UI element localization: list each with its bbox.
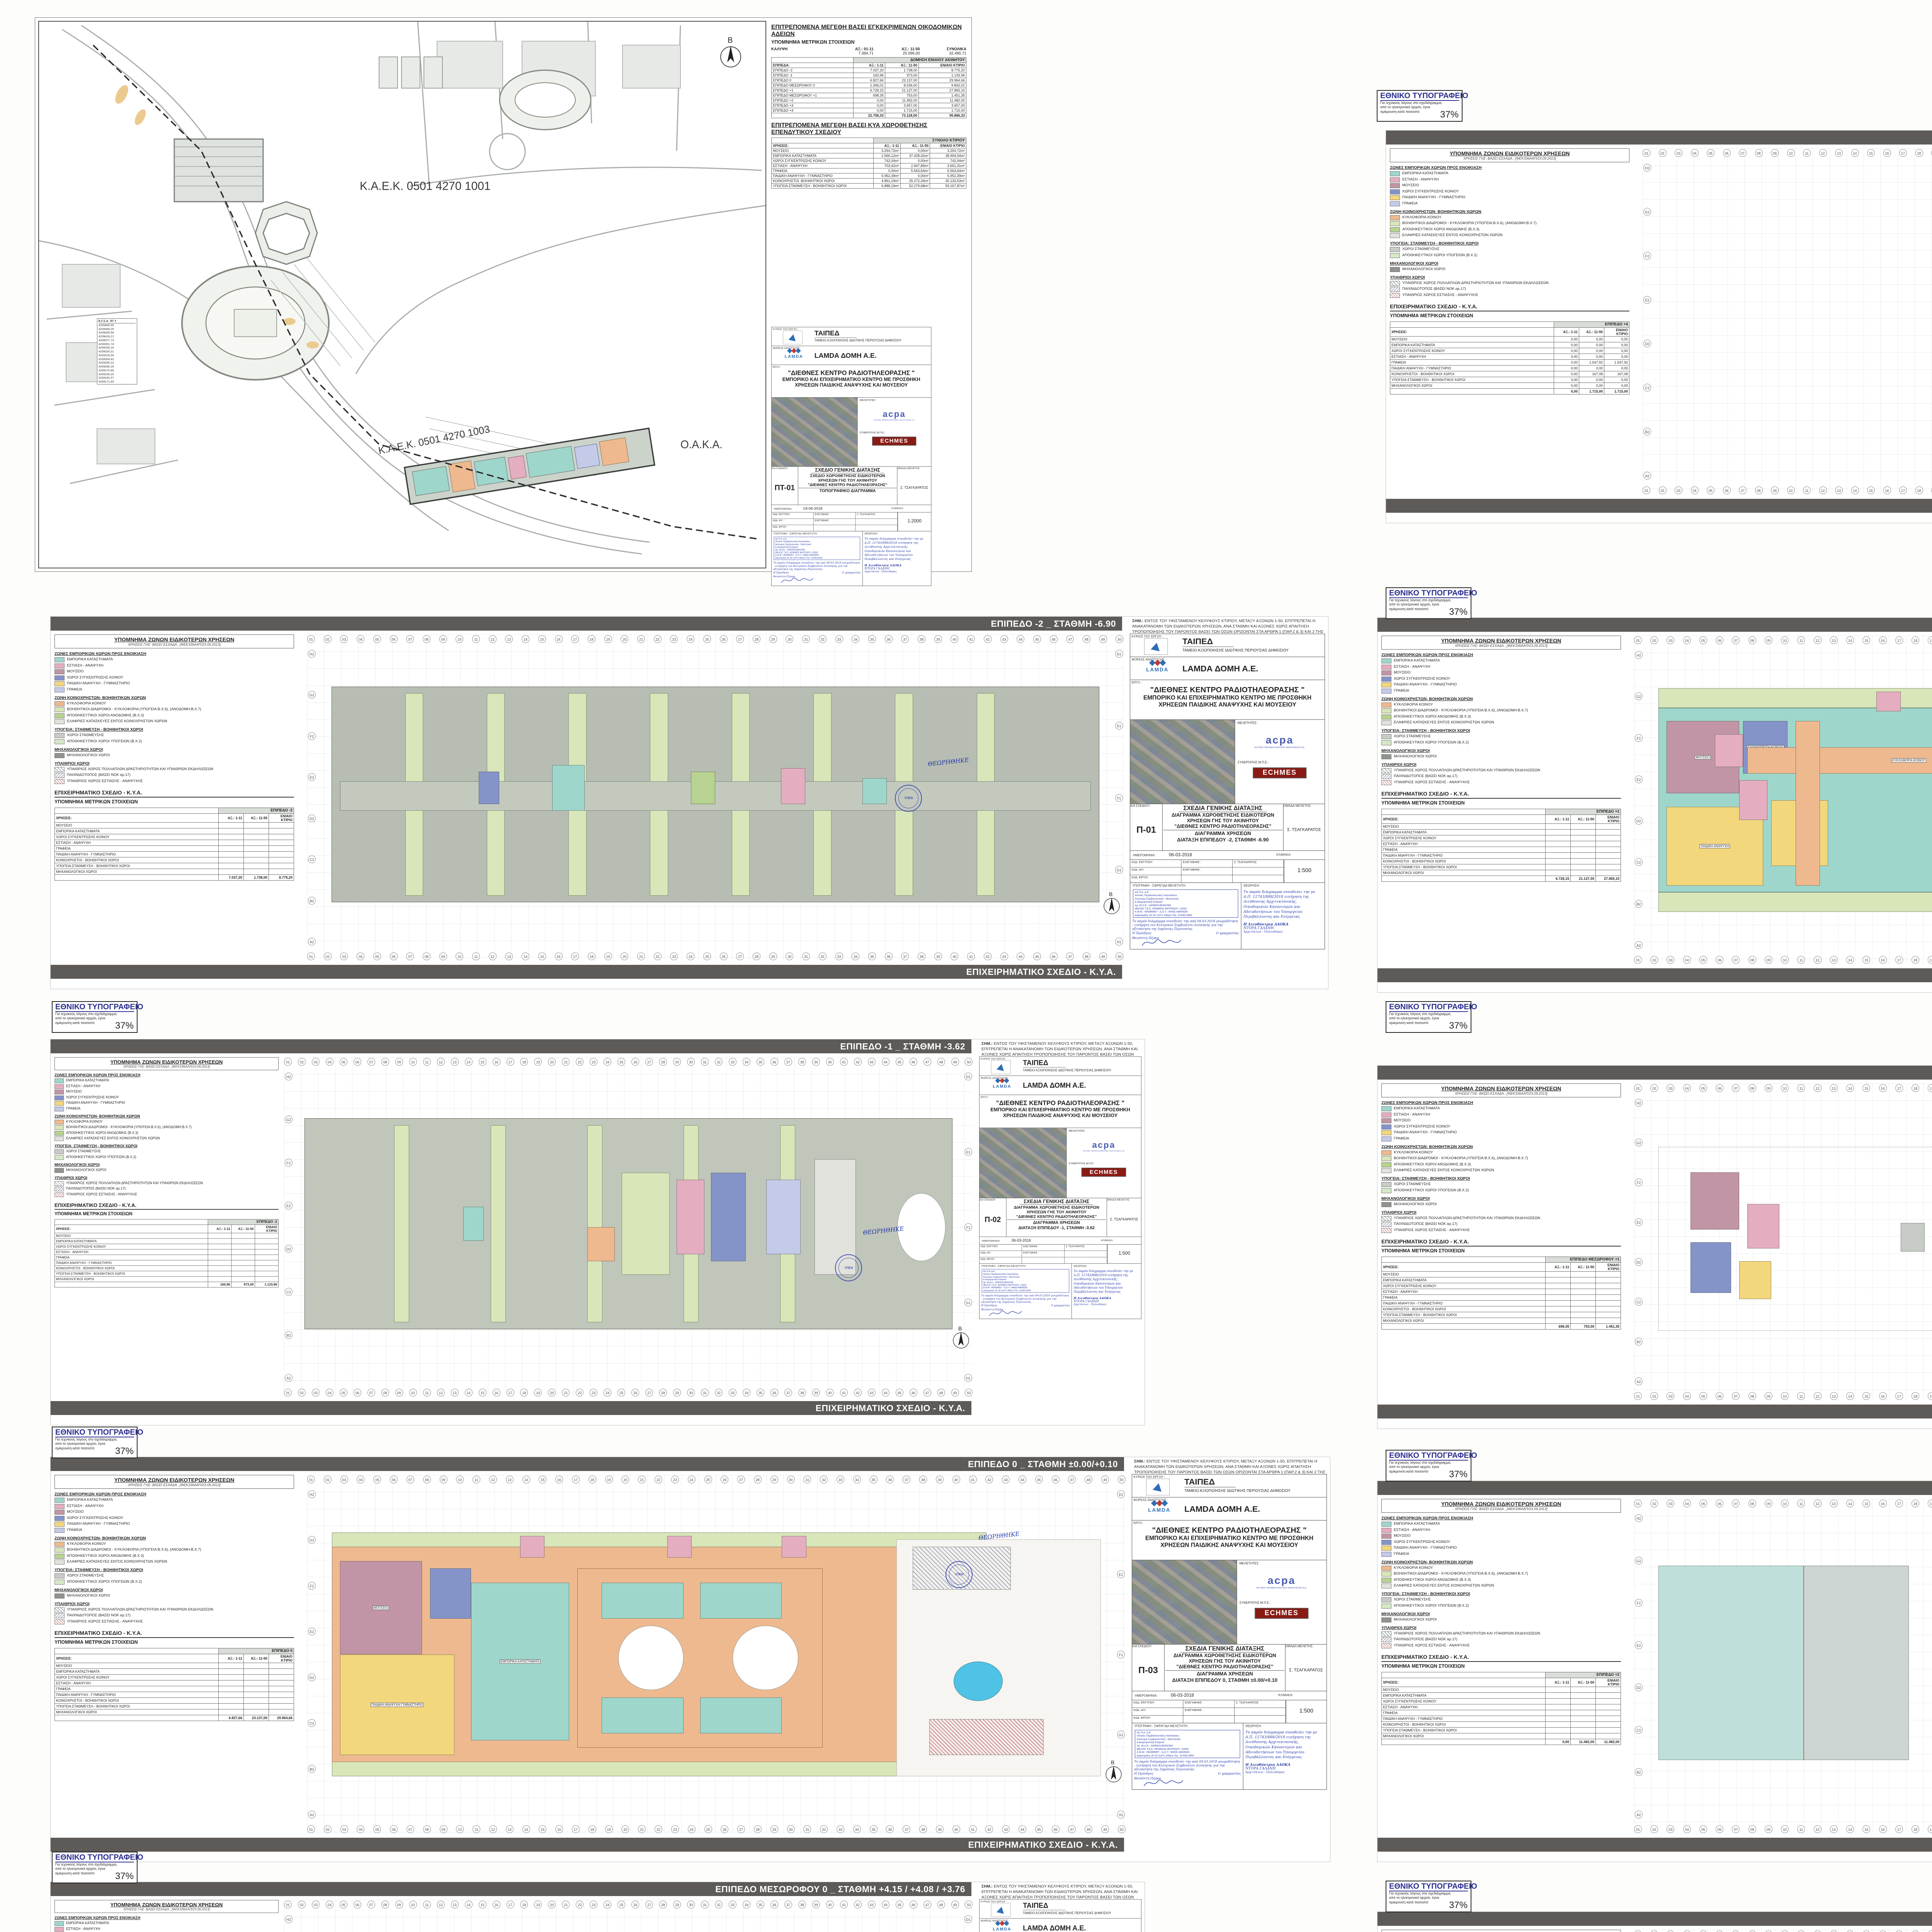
plan-zone: ΜΟΥΣΕΙΟ — [340, 1561, 422, 1655]
legend-item: ΥΠΑΙΘΡΙΟΣ ΧΩΡΟΣ ΠΟΛΛΑΠΛΩΝ ΔΡΑΣΤΗΡΙΟΤΗΤΩΝ… — [1381, 768, 1621, 773]
permitted-heading: ΕΠΙΤΡΕΠΟΜΕΝΑ ΜΕΓΕΘΗ ΒΑΣΕΙ ΕΓΚΕΚΡΙΜΕΝΩΝ Ο… — [771, 24, 966, 38]
legend-item: ΑΠΟΘΗΚΕΥΤΙΚΟΙ ΧΩΡΟΙ ΥΠΟΓΕΙΩΝ (Β.Χ.2) — [54, 739, 294, 744]
floor-plan: 0102030405060708091011121314151617181920… — [1634, 1499, 1932, 1834]
grid-axis-11: 11 — [473, 1825, 480, 1833]
grid-axis-34: 34 — [853, 1825, 861, 1833]
grid-axis-39: 39 — [934, 952, 942, 960]
reduction-percent: 37% — [1440, 109, 1459, 120]
grid-axis-16: 16 — [1883, 486, 1891, 494]
grid-axis-39: 39 — [934, 635, 942, 643]
grid-axis-22: 22 — [576, 1389, 583, 1396]
grid-axis-5: 05 — [340, 1058, 347, 1066]
legend-item-label: ΜΗΧΑΝΟΛΟΓΙΚΟΙ ΧΩΡΟΙ — [1394, 1202, 1437, 1206]
plan-zone — [340, 781, 1091, 811]
echmes-logo: ECHMES — [1253, 767, 1306, 778]
tennis-courts — [379, 57, 442, 88]
metrics-row: ΜΟΥΣΕΙΟ — [1382, 1271, 1621, 1277]
legend-item: ΜΟΥΣΕΙΟ — [54, 1090, 279, 1094]
plan-zone-label: ΠΑΙΔΙΚΗ ΑΝΑΨΥΧΗ ΓΥΜΝΑΣΤΗΡΙΟ — [371, 1702, 424, 1707]
grid-axis-17: 17 — [1899, 486, 1907, 494]
grid-axis-44: 44 — [1019, 1825, 1026, 1833]
metrics-heading: ΥΠΟΜΝΗΜΑ ΜΕΤΡΙΚΩΝ ΣΤΟΙΧΕΙΩΝ — [54, 799, 294, 804]
grid-axis-13: 13 — [1835, 149, 1843, 157]
legend-item: ΓΡΑΦΕΙΑ — [54, 1528, 294, 1533]
coord-value: 4209171,64 — [99, 380, 136, 384]
grid-axis-A2: A2 — [285, 1374, 293, 1382]
grid-axis-G2: G2 — [1643, 208, 1651, 216]
approver-name: ΝΤΟΡΑ ΓΑΛΑΝΗ — [1074, 1300, 1139, 1303]
legend-item-label: ΕΜΠΟΡΙΚΑ ΚΑΤΑΣΤΗΜΑΤΑ — [1394, 659, 1440, 663]
grid-axis-8: 08 — [1748, 956, 1756, 964]
plan-zone — [602, 1697, 684, 1733]
legend-swatch — [1390, 221, 1400, 226]
grid-axis-G2: G2 — [308, 691, 316, 699]
axis-letter-column-left: H2G2F2E2D2C2B2A2 — [1635, 1099, 1643, 1385]
legend-item: ΧΩΡΟΙ ΣΤΑΘΜΕΥΣΗΣ — [1381, 1182, 1621, 1187]
legend-item: ΧΩΡΟΙ ΣΤΑΘΜΕΥΣΗΣ — [54, 1573, 294, 1578]
legend-group-heading: ΖΩΝΕΣ ΕΜΠΟΡΙΚΩΝ ΧΩΡΩΝ ΠΡΟΣ ΕΝΟΙΚΙΑΣΗ — [54, 1073, 279, 1077]
metrics-row: ΜΟΥΣΕΙΟ — [1382, 1687, 1621, 1692]
grid-axis-6: 06 — [1723, 149, 1731, 157]
grid-axis-4: 04 — [357, 1476, 364, 1483]
grid-axis-12: 12 — [489, 1476, 497, 1483]
developer-row: ΦΟΡΕΑΣ ΑΝΑΠΤΥΞΗΣ : LAMDA LAMDA ΔΟΜΗ Α.Ε. — [772, 346, 931, 365]
legend-group-heading: ΖΩΝΕΣ ΕΜΠΟΡΙΚΩΝ ΧΩΡΩΝ ΠΡΟΣ ΕΝΟΙΚΙΑΣΗ — [1381, 1516, 1621, 1520]
legend-swatch — [1381, 1604, 1391, 1609]
legend-swatch — [1381, 1130, 1391, 1135]
legend-item: ΓΡΑΦΕΙΑ — [1381, 689, 1621, 694]
grid-axis-13: 13 — [451, 1389, 459, 1396]
legend-item-label: ΑΠΟΘΗΚΕΥΤΙΚΟΙ ΧΩΡΟΙ ΥΠΟΓΕΙΩΝ (Β.Χ.2) — [1394, 1604, 1469, 1608]
grid-axis-8: 08 — [1748, 1084, 1756, 1092]
legend-item-label: ΕΜΠΟΡΙΚΑ ΚΑΤΑΣΤΗΜΑΤΑ — [67, 1498, 113, 1502]
grid-axis-A2: A2 — [1643, 472, 1651, 480]
legend-item: ΕΛΑΦΡΙΕΣ ΚΑΤΑΣΚΕΥΕΣ ΕΝΤΟΣ ΚΟΙΝΟΧΡΗΣΤΩΝ Χ… — [54, 1136, 279, 1141]
grid-axis-10: 10 — [1781, 1930, 1789, 1932]
grid-axis-1: 01 — [1643, 149, 1650, 157]
legend-item: ΒΟΗΘΗΤΙΚΟΙ ΔΙΑΔΡΟΜΟΙ - ΚΥΚΛΟΦΟΡΙΑ (ΥΠΟΓΕ… — [54, 1548, 294, 1553]
legend-swatch — [54, 1548, 65, 1553]
stamp-title: ΕΘΝΙΚΟ ΤΥΠΟΓΡΑΦΕΙΟ — [1380, 92, 1459, 101]
grid-axis-17: 17 — [572, 1825, 580, 1833]
aerial-photo — [1132, 1560, 1237, 1644]
grid-axis-38: 38 — [919, 1476, 927, 1483]
grid-axis-45: 45 — [1033, 952, 1041, 960]
grid-axis-29: 29 — [770, 1476, 778, 1483]
national-printing-office-stamp: ΕΘΝΙΚΟ ΤΥΠΟΓΡΑΦΕΙΟ Για τεχνικούς λόγους … — [1386, 1001, 1471, 1033]
plan-zone — [1715, 734, 1743, 767]
drawing-level-line: ΔΙΑΤΑΞΗ ΕΠΙΠΕΔΟΥ -2, ΣΤΑΘΜΗ -6.90 — [1163, 837, 1282, 843]
legend-swatch — [1381, 1188, 1391, 1193]
metrics-row: ΥΠΟΓΕΙΑ:ΣΤΑΘΜΕΥΣΗ - ΒΟΗΘΗΤΙΚΟΙ ΧΩΡΟΙ — [55, 863, 294, 869]
legend-item-label: ΕΣΤΙΑΣΗ - ΑΝΑΨΥΧΗ — [66, 1085, 100, 1088]
grid-axis-17: 17 — [507, 1389, 514, 1396]
legend-item-label: ΑΠΟΘΗΚΕΥΤΙΚΟΙ ΧΩΡΟΙ ΑΝΟΔΟΜΗΣ (Β.Χ.3) — [67, 714, 144, 718]
drawing-scale: 1:500 — [1284, 860, 1325, 883]
grid-axis-46: 46 — [1050, 635, 1058, 643]
codes-row: ΚΩΔ. ΕΝΤΥΠΟΥ:ΕΛΕΓΧΘΗΚΕ :Σ. ΤΣΑΓΚΑΡΑΤΟΣ Κ… — [772, 512, 931, 531]
consultants-row: ΜΕΛΕΤΗΤΕΣ: acpa ΑΣΤΙΚΕΣ ΠΕΡΙΒΑΛΛΟΝΤΙΚΕΣ … — [772, 398, 931, 467]
drawing-info-row: Α/Α ΣΧΕΔΙΟΥ: Π-02 ΣΧΕΔΙΑ ΓΕΝΙΚΗΣ ΔΙΑΤΑΞΗ… — [980, 1198, 1141, 1237]
legend-item: ΓΡΑΦΕΙΑ — [1381, 1552, 1621, 1557]
signature-icon — [780, 575, 815, 585]
stamp-title: ΕΘΝΙΚΟ ΤΥΠΟΓΡΑΦΕΙΟ — [1389, 589, 1468, 598]
grid-axis-34: 34 — [853, 1476, 861, 1483]
plan-zone — [430, 1568, 471, 1619]
legend-swatch — [54, 719, 65, 724]
legend-item: ΒΟΗΘΗΤΙΚΟΙ ΔΙΑΔΡΟΜΟΙ - ΚΥΚΛΟΦΟΡΙΑ (ΥΠΟΓΕ… — [1381, 1571, 1621, 1577]
metrics-row: ΠΑΙΔΙΚΗ ΑΝΑΨΥΧΗ - ΓΥΜΝΑΣΤΗΡΙΟ — [55, 851, 294, 857]
grid-axis-39: 39 — [812, 1058, 820, 1066]
grid-axis-42: 42 — [854, 1058, 862, 1066]
project-title: "ΔΙΕΘΝΕΣ ΚΕΝΤΡΟ ΡΑΔΙΟΤΗΛΕΟΡΑΣΗΣ " — [1135, 1526, 1324, 1534]
legend-item: ΕΣΤΙΑΣΗ - ΑΝΑΨΥΧΗ — [1390, 177, 1629, 182]
grid-axis-F2: F2 — [1635, 734, 1643, 742]
grid-axis-27: 27 — [645, 1058, 653, 1066]
grid-axis-24: 24 — [604, 1901, 611, 1908]
plan-zone — [862, 778, 887, 804]
grid-axis-1: 01 — [307, 1476, 315, 1483]
grid-axis-2: 02 — [1650, 1500, 1658, 1507]
grid-axis-19: 19 — [534, 1901, 542, 1908]
legend-item-label: ΧΩΡΟΙ ΣΥΓΚΕΝΤΡΩΣΗΣ ΚΟΙΝΟΥ — [1394, 677, 1450, 681]
grid-axis-16: 16 — [1879, 636, 1887, 644]
grid-axis-10: 10 — [409, 1058, 417, 1066]
legend-item: ΕΜΠΟΡΙΚΑ ΚΑΤΑΣΤΗΜΑΤΑ — [1390, 171, 1629, 176]
grid-axis-E2: E2 — [308, 773, 316, 781]
grid-axis-18: 18 — [520, 1058, 528, 1066]
building-area-row: ΕΠΙΠΕΔΟ ΜΕΣΩΡΟΦΟΥ +1698,35753,001.451,35 — [772, 93, 966, 98]
legend-item: ΧΩΡΟΙ ΣΤΑΘΜΕΥΣΗΣ — [1390, 247, 1629, 252]
legend-swatch — [1381, 1118, 1391, 1123]
legend-group-heading: ΖΩΝΕΣ ΕΜΠΟΡΙΚΩΝ ΧΩΡΩΝ ΠΡΟΣ ΕΝΟΙΚΙΑΣΗ — [1390, 165, 1629, 170]
grid-axis-19: 19 — [604, 952, 612, 960]
legend-item-label: ΒΟΗΘΗΤΙΚΟΙ ΔΙΑΔΡΟΜΟΙ - ΚΥΚΛΟΦΟΡΙΑ (ΥΠΟΓΕ… — [1394, 1156, 1528, 1160]
legend-item: ΚΥΚΛΟΦΟΡΙΑ ΚΟΙΝΟΥ — [54, 1119, 279, 1124]
metrics-row: ΕΣΤΙΑΣΗ - ΑΝΑΨΥΧΗ0,000,000,00 — [1390, 354, 1629, 359]
legend-swatch — [1390, 195, 1400, 200]
metrics-row: ΓΡΑΦΕΙΑ — [55, 845, 294, 851]
grid-axis-40: 40 — [952, 1476, 960, 1483]
legend-group-heading: ΖΩΝΕΣ ΕΜΠΟΡΙΚΩΝ ΧΩΡΩΝ ΠΡΟΣ ΕΝΟΙΚΙΑΣΗ — [54, 1492, 294, 1497]
legend-title: ΥΠΟΜΝΗΜΑ ΖΩΝΩΝ ΕΙΔΙΚΟΤΕΡΩΝ ΧΡΗΣΕΩΝ — [56, 1477, 293, 1483]
building-area-row: ΕΠΙΠΕΔΟ +30,003.657,003.657,00 — [772, 103, 966, 108]
grid-axis-44: 44 — [1017, 952, 1024, 960]
legend-item: ΑΠΟΘΗΚΕΥΤΙΚΟΙ ΧΩΡΟΙ ΑΝΟΔΟΜΗΣ (Β.Χ.3) — [1381, 714, 1621, 719]
grid-axis-21: 21 — [638, 1825, 646, 1833]
metrics-row: ΜΗΧΑΝΟΛΟΓΙΚΟΙ ΧΩΡΟΙ — [55, 869, 294, 874]
developer-name: LAMDA ΔΟΜΗ Α.Ε. — [1023, 1082, 1086, 1090]
legend-item-label: ΧΩΡΟΙ ΣΤΑΘΜΕΥΣΗΣ — [1394, 735, 1431, 738]
metrics-row: ΠΑΙΔΙΚΗ ΑΝΑΨΥΧΗ - ΓΥΜΝΑΣΤΗΡΙΟ0,000,000,0… — [1390, 365, 1629, 371]
legend-column: ΥΠΟΜΝΗΜΑ ΖΩΝΩΝ ΕΙΔΙΚΟΤΕΡΩΝ ΧΡΗΣΕΩΝΧΡΗΣΕΙ… — [1381, 1930, 1621, 1932]
grid-axis-14: 14 — [465, 1389, 473, 1396]
svg-text:Β: Β — [728, 36, 733, 45]
grid-axis-32: 32 — [820, 1476, 828, 1483]
grid-axis-6: 06 — [354, 1058, 361, 1066]
legend-item: ΥΠΑΙΘΡΙΟΣ ΧΩΡΟΣ ΕΣΤΙΑΣΗΣ - ΑΝΑΨΥΧΗΣ — [1390, 293, 1629, 298]
legend-swatch — [1381, 677, 1391, 682]
grid-axis-24: 24 — [687, 635, 694, 643]
grid-axis-10: 10 — [1781, 636, 1789, 644]
legend-item-label: ΠΑΙΔΙΚΗ ΑΝΑΨΥΧΗ - ΓΥΜΝΑΣΤΗΡΙΟ — [67, 1522, 130, 1526]
grid-axis-18: 18 — [1915, 486, 1923, 494]
grid-axis-30: 30 — [787, 1476, 795, 1483]
grid-axis-35: 35 — [868, 952, 876, 960]
legend-swatch — [1381, 665, 1391, 670]
level-header-bar: ΕΠΙΠΕΔΟ -2 _ ΣΤΑΘΜΗ -6.90 — [51, 617, 1122, 631]
grid-axis-27: 27 — [645, 1389, 653, 1396]
plan-zone-label: ΠΑΙΔΙΚΗ ΑΝΑΨΥΧΗ — [1699, 844, 1730, 848]
metrics-row: ΕΜΠΟΡΙΚΑ ΚΑΤΑΣΤΗΜΑΤΑ — [1382, 1277, 1621, 1283]
grid-axis-34: 34 — [743, 1058, 750, 1066]
legend-item: ΠΑΙΧΝΙΔΟΤΟΠΟΣ (ΒΑΣΕΙ ΝΟΚ αρ.17) — [54, 773, 294, 778]
legend-item-label: ΒΟΗΘΗΤΙΚΟΙ ΔΙΑΔΡΟΜΟΙ - ΚΥΚΛΟΦΟΡΙΑ (ΥΠΟΓΕ… — [1394, 1572, 1528, 1576]
grid-axis-50: 50 — [1118, 1825, 1126, 1833]
grid-axis-7: 07 — [1739, 486, 1747, 494]
legend-item: ΚΥΚΛΟΦΟΡΙΑ ΚΟΙΝΟΥ — [54, 701, 294, 706]
legend-item: ΜΟΥΣΕΙΟ — [1390, 183, 1629, 188]
grid-axis-41: 41 — [969, 1825, 977, 1833]
legend-item: ΕΛΑΦΡΙΕΣ ΚΑΤΑΣΚΕΥΕΣ ΕΝΤΟΣ ΚΟΙΝΟΧΡΗΣΤΩΝ Χ… — [54, 719, 294, 724]
metrics-row: ΠΑΙΔΙΚΗ ΑΝΑΨΥΧΗ - ΓΥΜΝΑΣΤΗΡΙΟ — [55, 1692, 294, 1697]
grid-axis-C2: C2 — [1635, 1726, 1643, 1734]
indoor-hall — [174, 139, 263, 202]
grid-axis-29: 29 — [769, 635, 777, 643]
grid-axis-27: 27 — [736, 952, 744, 960]
coordinates-table: Ε.Γ.Σ.Α. '87 Y4209480,554209469,25420943… — [97, 318, 137, 384]
grid-axis-F2: F2 — [1643, 252, 1651, 260]
grid-axis-3: 03 — [340, 952, 348, 960]
grid-axis-21: 21 — [637, 952, 645, 960]
grid-axis-F1: F1 — [964, 1223, 972, 1231]
grid-axis-36: 36 — [770, 1901, 778, 1908]
grid-axis-47: 47 — [923, 1901, 931, 1908]
approval-note: Το παρόν διάγραμμα συνοδεύει την με Α.Π.… — [864, 537, 929, 561]
legend-title-box: ΥΠΟΜΝΗΜΑ ΖΩΝΩΝ ΕΙΔΙΚΟΤΕΡΩΝ ΧΡΗΣΕΩΝΧΡΗΣΕΙ… — [54, 1057, 279, 1070]
grid-axis-32: 32 — [819, 952, 827, 960]
grid-axis-43: 43 — [1002, 1825, 1010, 1833]
grid-axis-9: 09 — [439, 952, 447, 960]
grid-axis-45: 45 — [896, 1389, 903, 1396]
legend-swatch — [1390, 171, 1400, 176]
grid-axis-F1: F1 — [1117, 1651, 1125, 1658]
grid-axis-39: 39 — [936, 1825, 944, 1833]
legend-swatch — [54, 1554, 65, 1559]
legend-item: ΑΠΟΘΗΚΕΥΤΙΚΟΙ ΧΩΡΟΙ ΥΠΟΓΕΙΩΝ (Β.Χ.2) — [1381, 1604, 1621, 1609]
metrics-row: ΧΩΡΟΙ ΣΥΓΚΕΝΤΡΩΣΗΣ ΚΟΙΝΟΥ — [1382, 1283, 1621, 1289]
grid-axis-2: 02 — [324, 635, 332, 643]
grid-axis-43: 43 — [1000, 635, 1008, 643]
legend-column: ΥΠΟΜΝΗΜΑ ΖΩΝΩΝ ΕΙΔΙΚΟΤΕΡΩΝ ΧΡΗΣΕΩΝΧΡΗΣΕΙ… — [1381, 636, 1621, 965]
aerial-photo — [772, 398, 858, 466]
owner-name: ΤΑΙΠΕΔ — [1184, 1477, 1236, 1487]
coverage-row: ΚΑΛΥΨΗΑΞ.: 01-117.384,71ΑΞ.: 11-5025.096… — [771, 47, 966, 56]
grid-axis-D2: D2 — [308, 815, 316, 822]
plan-zone — [1690, 1242, 1731, 1293]
drawing-date: 06-03-2018 — [1169, 852, 1192, 857]
grid-axis-38: 38 — [798, 1389, 806, 1396]
building-area-row: ΕΠΙΠΕΔΟ +20,0011.482,0011.482,00 — [772, 98, 966, 103]
north-arrow-icon: Β — [952, 1326, 970, 1350]
legend-swatch — [1381, 1597, 1391, 1602]
metrics-heading: ΥΠΟΜΝΗΜΑ ΜΕΤΡΙΚΩΝ ΣΤΟΙΧΕΙΩΝ — [1381, 1248, 1621, 1253]
coord-value: 4209418,21 — [99, 335, 136, 338]
grid-axis-15: 15 — [479, 1901, 486, 1908]
legend-swatch — [54, 1084, 64, 1089]
grid-axis-1: 01 — [1634, 1392, 1642, 1400]
legend-item-label: ΥΠΑΙΘΡΙΟΣ ΧΩΡΟΣ ΠΟΛΛΑΠΛΩΝ ΔΡΑΣΤΗΡΙΟΤΗΤΩΝ… — [1394, 1216, 1540, 1220]
legend-item-label: ΥΠΑΙΘΡΙΟΣ ΧΩΡΟΣ ΠΟΛΛΑΠΛΩΝ ΔΡΑΣΤΗΡΙΟΤΗΤΩΝ… — [66, 1182, 203, 1185]
grid-axis-34: 34 — [852, 952, 859, 960]
drawing-level-line: ΔΙΑΤΑΞΗ ΕΠΙΠΕΔΟΥ -1, ΣΤΑΘΜΗ -3.62 — [1007, 1226, 1106, 1231]
grid-axis-33: 33 — [729, 1389, 736, 1396]
legend-item: ΥΠΑΙΘΡΙΟΣ ΧΩΡΟΣ ΠΟΛΛΑΠΛΩΝ ΔΡΑΣΤΗΡΙΟΤΗΤΩΝ… — [1390, 281, 1629, 286]
grid-axis-7: 07 — [406, 952, 414, 960]
grid-axis-47: 47 — [1066, 952, 1074, 960]
legend-item-label: ΥΠΑΙΘΡΙΟΣ ΧΩΡΟΣ ΕΣΤΙΑΣΗΣ - ΑΝΑΨΥΧΗΣ — [67, 779, 143, 783]
grid-axis-43: 43 — [868, 1389, 876, 1396]
legend-group-heading: ΖΩΝΗ ΚΟΙΝΟΧΡΗΣΤΩΝ- ΒΟΗΘΗΤΙΚΩΝ ΧΩΡΩΝ — [54, 1114, 279, 1118]
grid-axis-5: 05 — [340, 1389, 347, 1396]
title-block: ΚΥΡΙΟΣ ΤΟΥ ΕΡΓΟΥ : ΤΑΙΠΕΔ ΤΑΜΕΙΟ ΑΞΙΟΠΟΙ… — [1132, 1474, 1327, 1790]
national-printing-office-stamp: ΕΘΝΙΚΟ ΤΥΠΟΓΡΑΦΕΙΟ Για τεχνικούς λόγους … — [52, 1427, 138, 1458]
kaek-label-1: Κ.Α.Ε.Κ. 0501 4270 1001 — [360, 180, 491, 192]
grid-axis-15: 15 — [538, 952, 546, 960]
grid-axis-45: 45 — [896, 1058, 903, 1066]
grid-axis-19: 19 — [534, 1389, 542, 1396]
grid-axis-49: 49 — [1099, 952, 1107, 960]
grid-axis-H1: H1 — [1115, 938, 1123, 946]
grid-axis-12: 12 — [437, 1389, 445, 1396]
site-map-svg: Κ.Α.Ε.Κ. 0501 4270 1001 Κ.Α.Ε.Κ. 0501 42… — [39, 22, 765, 568]
legend-swatch — [54, 1192, 64, 1197]
legend-item-label: ΠΑΙΧΝΙΔΟΤΟΠΟΣ (ΒΑΣΕΙ ΝΟΚ αρ.17) — [1394, 1638, 1458, 1641]
legend-item: ΠΑΙΧΝΙΔΟΤΟΠΟΣ (ΒΑΣΕΙ ΝΟΚ αρ.17) — [1381, 774, 1621, 779]
legend-item: ΑΠΟΘΗΚΕΥΤΙΚΟΙ ΧΩΡΟΙ ΑΝΟΔΟΜΗΣ (Β.Χ.3) — [54, 1131, 279, 1135]
legend-item: ΠΑΙΧΝΙΔΟΤΟΠΟΣ (ΒΑΣΕΙ ΝΟΚ αρ.17) — [1390, 287, 1629, 292]
legend-item-label: ΥΠΑΙΘΡΙΟΣ ΧΩΡΟΣ ΕΣΤΙΑΣΗΣ - ΑΝΑΨΥΧΗΣ — [66, 1193, 137, 1197]
reduction-percent: 37% — [1449, 1469, 1468, 1480]
legend-title: ΥΠΟΜΝΗΜΑ ΖΩΝΩΝ ΕΙΔΙΚΟΤΕΡΩΝ ΧΡΗΣΕΩΝ — [1383, 1501, 1620, 1507]
legend-item: ΠΑΙΔΙΚΗ ΑΝΑΨΥΧΗ - ΓΥΜΝΑΣΤΗΡΙΟ — [1381, 1546, 1621, 1551]
approval-note: Το παρόν διάγραμμα συνοδεύει την με Α.Π.… — [1243, 889, 1323, 919]
legend-title-box: ΥΠΟΜΝΗΜΑ ΖΩΝΩΝ ΕΙΔΙΚΟΤΕΡΩΝ ΧΡΗΣΕΩΝΧΡΗΣΕΙ… — [1381, 636, 1621, 650]
legend-swatch — [54, 1150, 64, 1154]
legend-group-heading: ΥΠΑΙΘΡΙΟΙ ΧΩΡΟΙ — [1381, 1626, 1621, 1630]
legend-group-heading: ΥΠΟΓΕΙΑ: ΣΤΑΘΜΕΥΣΗ - ΒΟΗΘΗΤΙΚΟΙ ΧΩΡΟΙ — [1390, 241, 1629, 246]
legend-item-label: ΥΠΑΙΘΡΙΟΣ ΧΩΡΟΣ ΕΣΤΙΑΣΗΣ - ΑΝΑΨΥΧΗΣ — [1394, 1644, 1470, 1648]
legend-swatch — [54, 1522, 65, 1527]
series-title: ΣΧΕΔΙΑ ΓΕΝΙΚΗΣ ΔΙΑΤΑΞΗΣ — [1180, 1645, 1269, 1653]
legend-item-label: ΓΡΑΦΕΙΑ — [1402, 202, 1418, 206]
grid-axis-9: 09 — [1771, 149, 1779, 157]
legend-item: ΥΠΑΙΘΡΙΟΣ ΧΩΡΟΣ ΕΣΤΙΑΣΗΣ - ΑΝΑΨΥΧΗΣ — [54, 1619, 294, 1624]
drawing-subtitle: ΔΙΑΓΡΑΜΜΑ ΧΡΗΣΕΩΝ — [1007, 1221, 1106, 1226]
title-block: ΚΥΡΙΟΣ ΤΟΥ ΕΡΓΟΥ : ΤΑΙΠΕΔ ΤΑΜΕΙΟ ΑΞΙΟΠΟΙ… — [1130, 634, 1325, 949]
grid-axis-G2: G2 — [1635, 1139, 1643, 1146]
plan-zone — [897, 1193, 946, 1261]
legend-swatch — [54, 1119, 64, 1124]
grid-axis-46: 46 — [910, 1058, 917, 1066]
legend-swatch — [1390, 253, 1400, 258]
drawing-scale: 1:500 — [1286, 1700, 1327, 1723]
building-area-total: 22.758,3373.128,0095.886,33 — [772, 113, 966, 118]
grid-axis-35: 35 — [868, 635, 876, 643]
grid-axis-10: 10 — [1781, 1084, 1789, 1092]
building-area-row: ΕΠΙΠΕΔΟ +16.728,1521.137,0027.865,15 — [772, 88, 966, 93]
grid-axis-28: 28 — [753, 635, 760, 643]
grid-axis-16: 16 — [1879, 1825, 1887, 1833]
legend-item: ΥΠΑΙΘΡΙΟΣ ΧΩΡΟΣ ΕΣΤΙΑΣΗΣ - ΑΝΑΨΥΧΗΣ — [1381, 780, 1621, 785]
metrics-row: ΜΗΧΑΝΟΛΟΓΙΚΟΙ ΧΩΡΟΙ — [54, 1276, 278, 1282]
building-area-row: ΕΠΙΠΕΔΟ ΜΕΣΩΡΟΦΟΥ 01.306,018.536,009.842… — [772, 83, 966, 88]
grid-axis-18: 18 — [588, 635, 595, 643]
grid-axis-E2: E2 — [1635, 1218, 1643, 1226]
legend-swatch — [54, 1927, 64, 1932]
plan-zone — [700, 1697, 782, 1733]
grid-axis-16: 16 — [493, 1389, 500, 1396]
grid-axis-28: 28 — [659, 1389, 667, 1396]
axis-number-row-top: 0102030405060708091011121314151617181920… — [284, 1901, 973, 1908]
approver-name: ΝΤΟΡΑ ΓΑΛΑΝΗ — [864, 567, 929, 570]
grid-axis-18: 18 — [1912, 1084, 1919, 1092]
grid-axis-40: 40 — [951, 635, 958, 643]
acpa-logo: acpa — [1069, 1140, 1139, 1150]
grid-axis-11: 11 — [472, 952, 480, 960]
legend-swatch — [1381, 1528, 1391, 1533]
reduction-percent: 37% — [115, 1020, 134, 1031]
grid-axis-A2: A2 — [308, 938, 316, 946]
drawing-date: 06-03-2018 — [1012, 1238, 1031, 1242]
grid-axis-21: 21 — [562, 1901, 570, 1908]
legend-swatch — [1390, 293, 1400, 298]
aspa-stamp: ΑΣ.Π.Α. Α.Ε.Αστικές Περιβαλλοντικές Αναπ… — [1135, 1730, 1240, 1758]
series-title: ΣΧΕΔΙΟ ΓΕΝΙΚΗΣ ΔΙΑΤΑΞΗΣ — [811, 467, 884, 473]
axis-number-row-bottom: 0102030405060708091011121314151617181920… — [1634, 956, 1932, 964]
legend-item-label: ΠΑΙΔΙΚΗ ΑΝΑΨΥΧΗ - ΓΥΜΝΑΣΤΗΡΙΟ — [66, 1101, 125, 1105]
project-title: "ΔΙΕΘΝΕΣ ΚΕΝΤΡΟ ΡΑΔΙΟΤΗΛΕΟΡΑΣΗΣ " — [774, 369, 929, 377]
metrics-row: ΕΣΤΙΑΣΗ - ΑΝΑΨΥΧΗ — [55, 1680, 294, 1686]
grid-axis-1: 01 — [1634, 1084, 1642, 1092]
axis-number-row-bottom: 0102030405060708091011121314151617181920… — [307, 1825, 1126, 1833]
legend-swatch — [54, 767, 65, 772]
grid-axis-4: 04 — [357, 635, 364, 643]
grid-axis-15: 15 — [1862, 1084, 1870, 1092]
grid-axis-38: 38 — [919, 1825, 927, 1833]
legend-item-label: ΜΟΥΣΕΙΟ — [67, 1510, 84, 1514]
grid-axis-25: 25 — [617, 1389, 625, 1396]
legend-item-label: ΑΠΟΘΗΚΕΥΤΙΚΟΙ ΧΩΡΟΙ ΥΠΟΓΕΙΩΝ (Β.Χ.2) — [67, 740, 142, 743]
legend-swatch — [54, 1542, 65, 1547]
grid-axis-46: 46 — [910, 1389, 917, 1396]
legend-item: ΜΟΥΣΕΙΟ — [1381, 1118, 1621, 1123]
legend-swatch — [1381, 720, 1391, 725]
grid-axis-5: 05 — [373, 635, 381, 643]
legend-item-label: ΧΩΡΟΙ ΣΥΓΚΕΝΤΡΩΣΗΣ ΚΟΙΝΟΥ — [1394, 1125, 1450, 1129]
grid-axis-25: 25 — [617, 1901, 625, 1908]
grid-axis-D2: D2 — [308, 1673, 316, 1681]
grid-axis-F2: F2 — [285, 1159, 293, 1167]
grid-axis-C2: C2 — [308, 855, 316, 863]
legend-item-label: ΑΠΟΘΗΚΕΥΤΙΚΟΙ ΧΩΡΟΙ ΑΝΟΔΟΜΗΣ (Β.Χ.3) — [1394, 1163, 1471, 1167]
legend-group-heading: ΜΗΧΑΝΟΛΟΓΙΚΟΙ ΧΩΡΟΙ — [1390, 261, 1629, 266]
legend-item: ΧΩΡΟΙ ΣΥΓΚΕΝΤΡΩΣΗΣ ΚΟΙΝΟΥ — [54, 1516, 294, 1521]
metrics-row: ΥΠΟΓΕΙΑ:ΣΤΑΘΜΕΥΣΗ - ΒΟΗΘΗΤΙΚΟΙ ΧΩΡΟΙ — [1382, 1312, 1621, 1318]
metrics-table: ΕΠΙΠΕΔΟ +1ΧΡΗΣΕΙΣ:ΑΞ.: 1-11ΑΞ.: 11-50ΕΝΙ… — [1381, 809, 1621, 882]
legend-group-heading: ΖΩΝΗ ΚΟΙΝΟΧΡΗΣΤΩΝ- ΒΟΗΘΗΤΙΚΩΝ ΧΩΡΩΝ — [1381, 1560, 1621, 1565]
grid-axis-1: 01 — [1634, 1825, 1642, 1833]
